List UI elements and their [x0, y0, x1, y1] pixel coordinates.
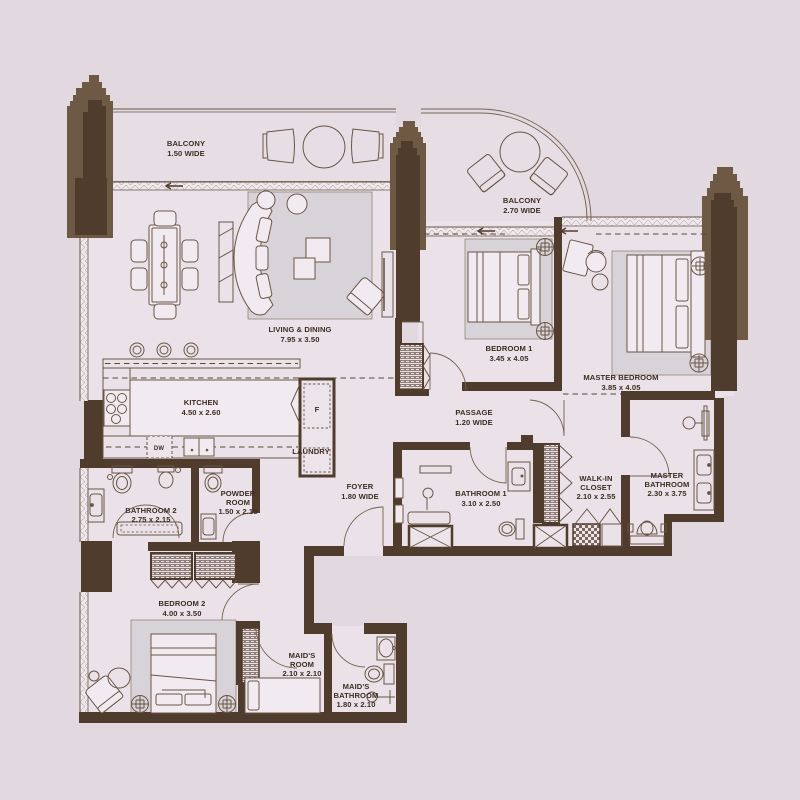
- svg-text:1.80 WIDE: 1.80 WIDE: [341, 492, 379, 501]
- svg-text:PASSAGE: PASSAGE: [455, 408, 492, 417]
- svg-text:2.10 x 2.10: 2.10 x 2.10: [282, 669, 321, 678]
- svg-text:BEDROOM 1: BEDROOM 1: [486, 344, 534, 353]
- svg-text:3.85 x 4.05: 3.85 x 4.05: [601, 383, 641, 392]
- svg-text:KITCHEN: KITCHEN: [184, 398, 218, 407]
- svg-text:POWDER: POWDER: [221, 489, 256, 498]
- svg-text:BEDROOM 2: BEDROOM 2: [159, 599, 206, 608]
- svg-text:BALCONY: BALCONY: [167, 139, 205, 148]
- svg-text:MASTER: MASTER: [651, 471, 684, 480]
- svg-text:4.00 x 3.50: 4.00 x 3.50: [162, 609, 201, 618]
- svg-text:1.50 x 2.15: 1.50 x 2.15: [218, 507, 258, 516]
- svg-text:4.50 x 2.60: 4.50 x 2.60: [181, 408, 220, 417]
- svg-text:WALK-IN: WALK-IN: [579, 474, 612, 483]
- svg-text:ROOM: ROOM: [226, 498, 250, 507]
- svg-text:3.45 x 4.05: 3.45 x 4.05: [489, 354, 529, 363]
- svg-text:DW: DW: [154, 446, 164, 452]
- svg-text:1.80 x 2.10: 1.80 x 2.10: [336, 700, 375, 709]
- svg-text:MAID'S: MAID'S: [343, 682, 370, 691]
- svg-text:BATHROOM 2: BATHROOM 2: [125, 506, 176, 515]
- svg-text:LIVING & DINING: LIVING & DINING: [268, 325, 331, 334]
- svg-text:MAID'S: MAID'S: [289, 651, 316, 660]
- svg-text:7.95 x 3.50: 7.95 x 3.50: [280, 335, 319, 344]
- svg-text:MASTER BEDROOM: MASTER BEDROOM: [583, 373, 658, 382]
- svg-text:LAUNDRY: LAUNDRY: [292, 447, 330, 456]
- svg-text:FOYER: FOYER: [347, 482, 374, 491]
- svg-text:ROOM: ROOM: [290, 660, 314, 669]
- svg-text:F: F: [315, 405, 320, 414]
- svg-text:3.10 x 2.50: 3.10 x 2.50: [461, 499, 500, 508]
- svg-text:2.70 WIDE: 2.70 WIDE: [503, 206, 541, 215]
- svg-text:BALCONY: BALCONY: [503, 196, 541, 205]
- svg-text:CLOSET: CLOSET: [580, 483, 612, 492]
- svg-text:BATHROOM: BATHROOM: [645, 480, 690, 489]
- svg-text:2.75 x 2.15: 2.75 x 2.15: [131, 515, 171, 524]
- svg-text:1.20 WIDE: 1.20 WIDE: [455, 418, 493, 427]
- svg-text:BATHROOM 1: BATHROOM 1: [455, 489, 507, 498]
- svg-text:1.50 WIDE: 1.50 WIDE: [167, 149, 205, 158]
- svg-text:2.30 x 3.75: 2.30 x 3.75: [647, 489, 687, 498]
- svg-text:BATHROOM: BATHROOM: [334, 691, 379, 700]
- svg-text:2.10 x 2.55: 2.10 x 2.55: [576, 492, 616, 501]
